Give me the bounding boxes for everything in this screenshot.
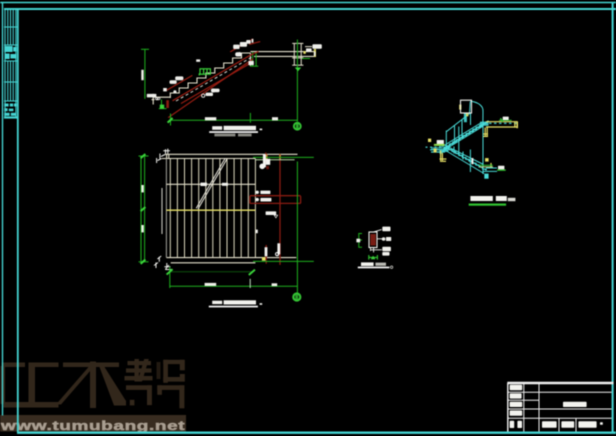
svg-text:www.tumubang.net: www.tumubang.net <box>0 419 185 433</box>
